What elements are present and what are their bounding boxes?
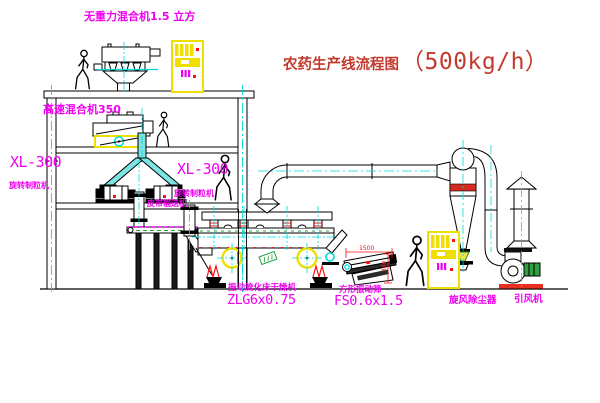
fan-label: 引风机: [514, 295, 543, 305]
process-flow-diagram: 1500 340: [0, 0, 600, 403]
high-speed-mixer-label: 高速混合机350: [43, 104, 121, 115]
spring-support-icon: [204, 266, 226, 288]
indicator-light-icon: [452, 239, 455, 242]
person-figure: [76, 50, 90, 88]
person-figure: [157, 112, 169, 146]
belt-conveyor-label: 皮带输送机: [147, 200, 187, 208]
diagram-title: 农药生产线流程图 （500kg/h）: [283, 42, 548, 76]
control-cabinet-top: [172, 41, 203, 92]
person-figure: [406, 236, 423, 285]
screen-model-label: FS0.6x1.5: [334, 295, 403, 309]
gauge-bars-icon: [437, 263, 446, 270]
granulator-center-model-label: XL-300: [177, 162, 228, 177]
dimension-340-text: 340: [381, 260, 388, 272]
fan-base: [499, 284, 543, 289]
granulator-left-name-label: 旋转制粒机: [9, 182, 49, 190]
dryer-model-label: ZLG6x0.75: [227, 294, 296, 308]
gravity-mixer-label: 无重力混合机1.5 立方: [84, 11, 195, 22]
control-cabinet-right: [428, 232, 459, 288]
gauge-bars-icon: [181, 70, 190, 77]
dimension-1500-text: 1500: [359, 245, 374, 252]
title-text: 农药生产线流程图: [283, 53, 399, 74]
spring-support-icon: [310, 266, 332, 288]
indicator-light-icon: [450, 268, 453, 271]
induced-draft-fan: [499, 248, 543, 289]
dryer-nameplate: [259, 252, 277, 265]
indicator-light-icon: [193, 75, 196, 78]
fan-motor: [524, 263, 540, 276]
title-capacity: （500kg/h）: [401, 42, 548, 76]
vibrating-screen: [343, 252, 397, 285]
cyclone-label: 旋风除尘器: [449, 296, 497, 306]
fluid-bed-dryer: [192, 206, 347, 288]
granulator-center-name-label: 旋转制粒机: [174, 190, 214, 198]
exhaust-duct: [255, 162, 450, 213]
indicator-light-icon: [196, 48, 199, 51]
granulator-left-model-label: XL-300: [10, 155, 61, 170]
granulator-discharge-pipe: [131, 160, 147, 228]
granulator-left: [96, 186, 136, 203]
gravity-mixer: [94, 42, 160, 92]
duct-elbow: [261, 165, 287, 199]
